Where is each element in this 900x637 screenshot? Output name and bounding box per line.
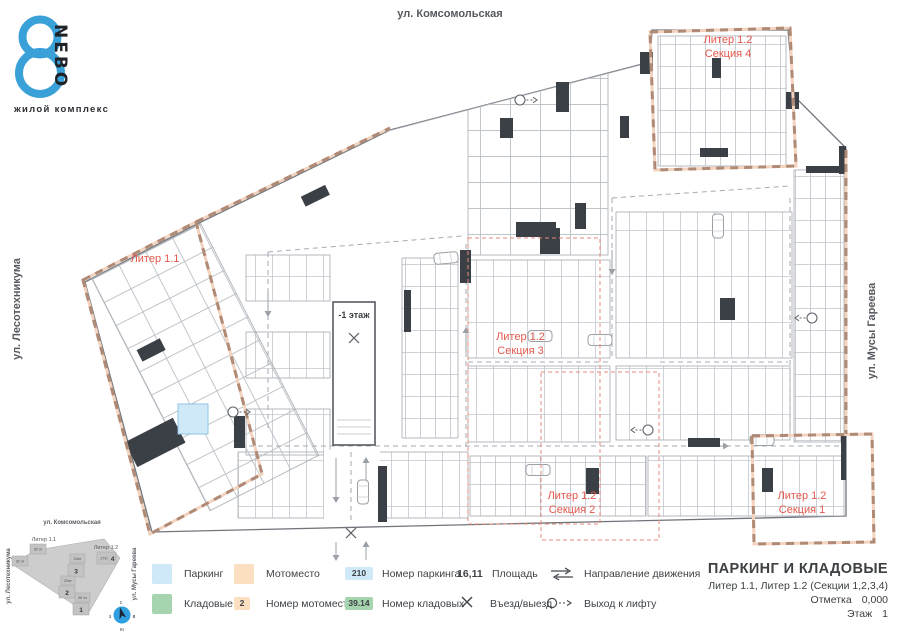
area-sample-value: 16,11 <box>457 568 483 580</box>
storage-number-badge: 39.14 <box>345 597 373 610</box>
compass-east: в <box>133 614 136 620</box>
highlighted-parking-space[interactable] <box>178 404 208 434</box>
svg-text:24эт: 24эт <box>74 557 82 561</box>
label-section-1: Литер 1.2 Секция 1 <box>752 489 852 518</box>
entry-exit-legend-x-icon <box>460 595 474 609</box>
moto-number-badge: 2 <box>234 597 250 610</box>
svg-text:32 эт: 32 эт <box>16 560 25 564</box>
svg-text:1: 1 <box>79 607 83 614</box>
floor-row: Этаж1 <box>568 608 888 620</box>
compass-north: с <box>120 600 123 606</box>
drawing-title: ПАРКИНГ И КЛАДОВЫЕ <box>568 561 888 577</box>
legend-parking-number-label: Номер паркинга <box>382 568 460 580</box>
svg-text:20эт: 20эт <box>64 579 72 583</box>
storage-color-swatch <box>152 594 172 614</box>
compass: с в з ю <box>109 600 136 633</box>
label-liter-1-1: Литер 1.1 <box>110 252 200 266</box>
legend-moto-number-label: Номер мотоместа <box>266 598 353 610</box>
svg-text:17эт: 17эт <box>100 557 108 561</box>
svg-text:20 эт: 20 эт <box>78 596 87 600</box>
compass-south: ю <box>120 627 124 633</box>
site-minimap: ул. Комсомольская ул. Лесотехникума ул. … <box>0 512 145 637</box>
parking-color-swatch <box>152 564 172 584</box>
label-section-2: Литер 1.2 Секция 2 <box>522 489 622 518</box>
compass-west: з <box>109 614 112 620</box>
legend-area-label: Площадь <box>492 568 538 580</box>
svg-text:2: 2 <box>65 590 69 597</box>
entry-exit-x-icon <box>346 528 356 538</box>
elevation-value: 0,000 <box>862 594 888 606</box>
legend-storage-number-label: Номер кладовых <box>382 598 464 610</box>
minimap-street-top: ул. Комсомольская <box>43 520 101 526</box>
drawing-subtitle: Литер 1.1, Литер 1.2 (Секции 1,2,3,4) <box>568 580 888 592</box>
legend-parking-label: Паркинг <box>184 568 223 580</box>
legend-moto-label: Мотоместо <box>266 568 320 580</box>
entrance-corridor <box>324 450 380 520</box>
legend-storage-label: Кладовые <box>184 598 233 610</box>
legend-entry-exit-label: Въезд/выезд <box>490 598 552 610</box>
ramp-label: -1 этаж <box>338 310 370 320</box>
elevation-row: Отметка0,000 <box>568 594 888 606</box>
svg-text:3: 3 <box>74 569 78 576</box>
svg-text:4: 4 <box>111 556 115 563</box>
parking-number-badge: 210 <box>345 567 373 580</box>
minimap-liter-1-1: Литер 1.1 <box>32 537 56 543</box>
minimap-street-right: ул. Мусы Гареева <box>132 547 138 600</box>
ramp-box: -1 этаж <box>333 302 375 445</box>
moto-color-swatch <box>234 564 254 584</box>
svg-text:30 эт: 30 эт <box>34 548 43 552</box>
minimap-street-left: ул. Лесотехникума <box>6 548 12 604</box>
floor-value: 1 <box>882 608 888 620</box>
floor-plan-page: NEBO жилой комплекс ул. Комсомольская ул… <box>0 0 900 637</box>
label-section-3: Литер 1.2 Секция 3 <box>468 330 573 359</box>
label-section-4: Литер 1.2 Секция 4 <box>678 33 778 62</box>
minimap-liter-1-2: Литер 1.2 <box>94 545 118 551</box>
title-block: ПАРКИНГ И КЛАДОВЫЕ Литер 1.1, Литер 1.2 … <box>568 561 888 620</box>
